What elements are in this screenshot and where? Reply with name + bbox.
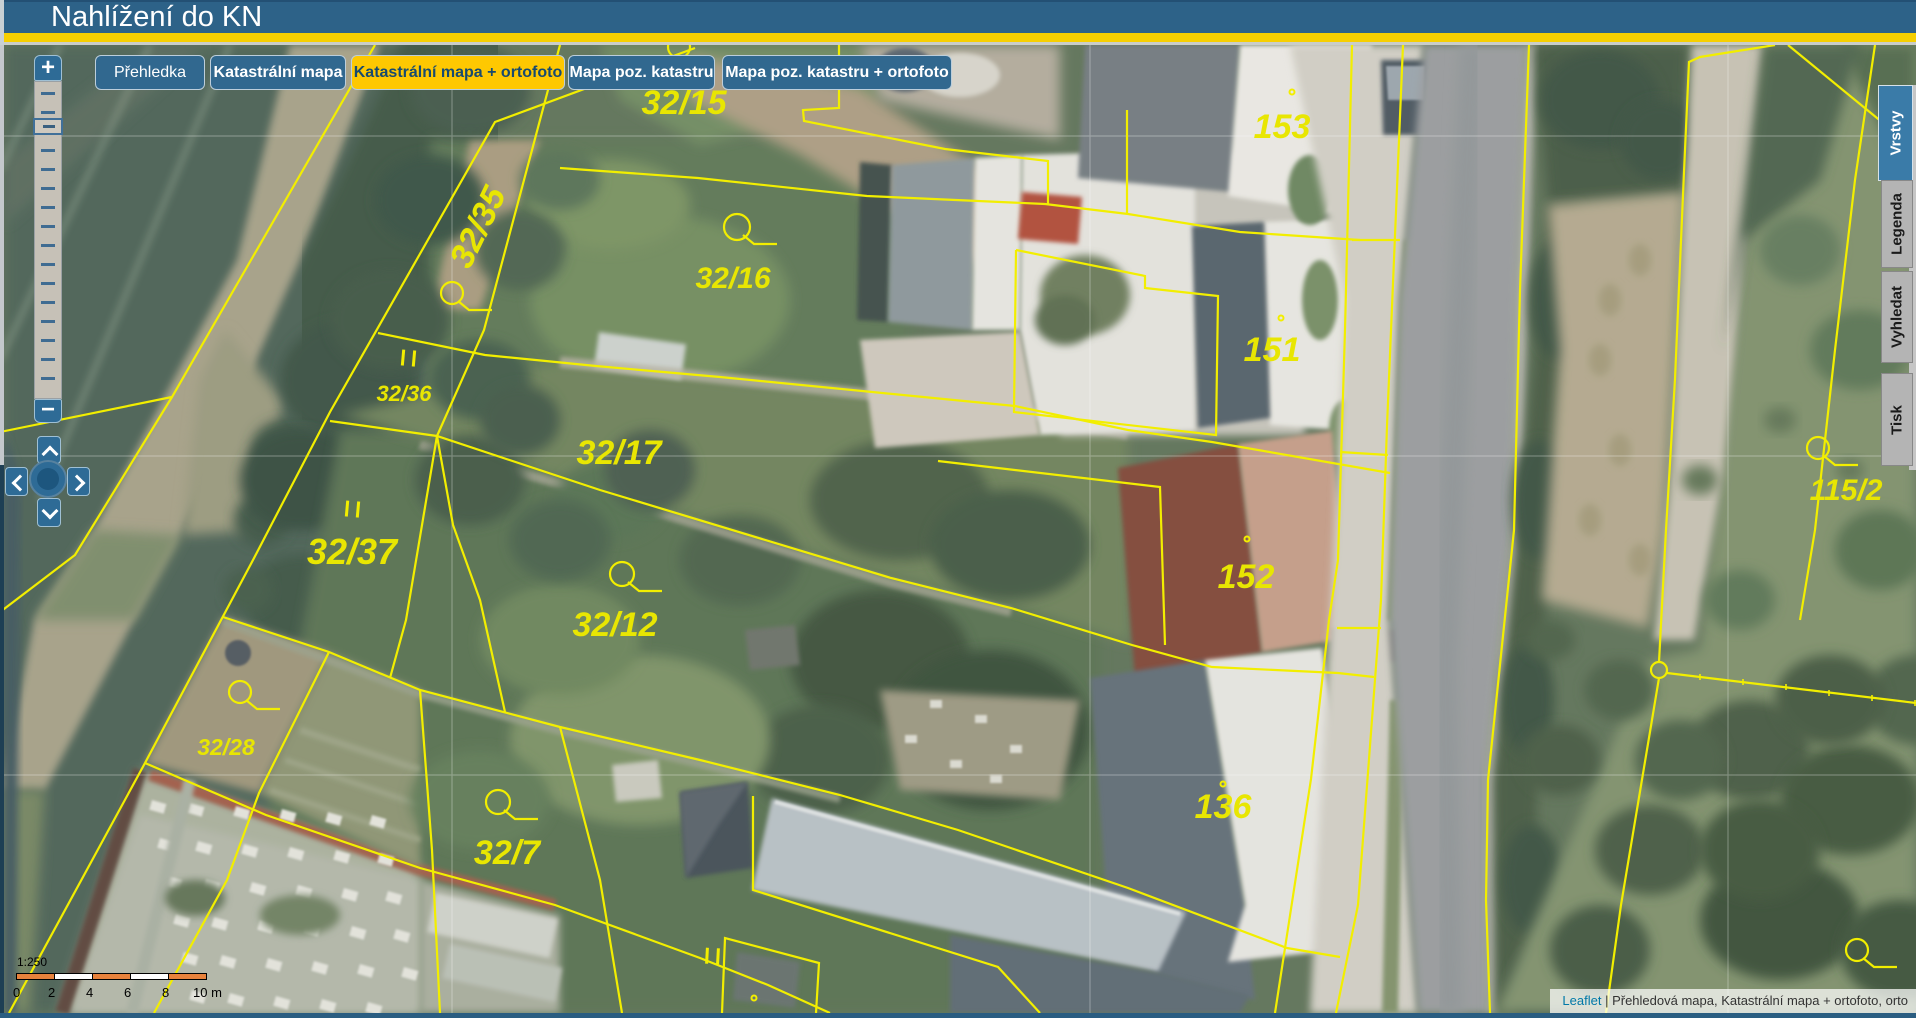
svg-text:115/2: 115/2 [1810, 474, 1883, 507]
svg-text:136: 136 [1195, 788, 1253, 826]
svg-text:32/16: 32/16 [695, 262, 770, 295]
svg-text:32/12: 32/12 [572, 606, 657, 644]
svg-text:32/7: 32/7 [474, 834, 542, 872]
svg-text:153: 153 [1254, 108, 1311, 146]
svg-text:32/28: 32/28 [197, 734, 255, 760]
svg-text:32/17: 32/17 [576, 434, 663, 472]
svg-text:32/36: 32/36 [376, 381, 432, 406]
svg-text:32/37: 32/37 [307, 531, 399, 572]
svg-text:151: 151 [1244, 331, 1301, 369]
svg-text:152: 152 [1218, 558, 1275, 596]
